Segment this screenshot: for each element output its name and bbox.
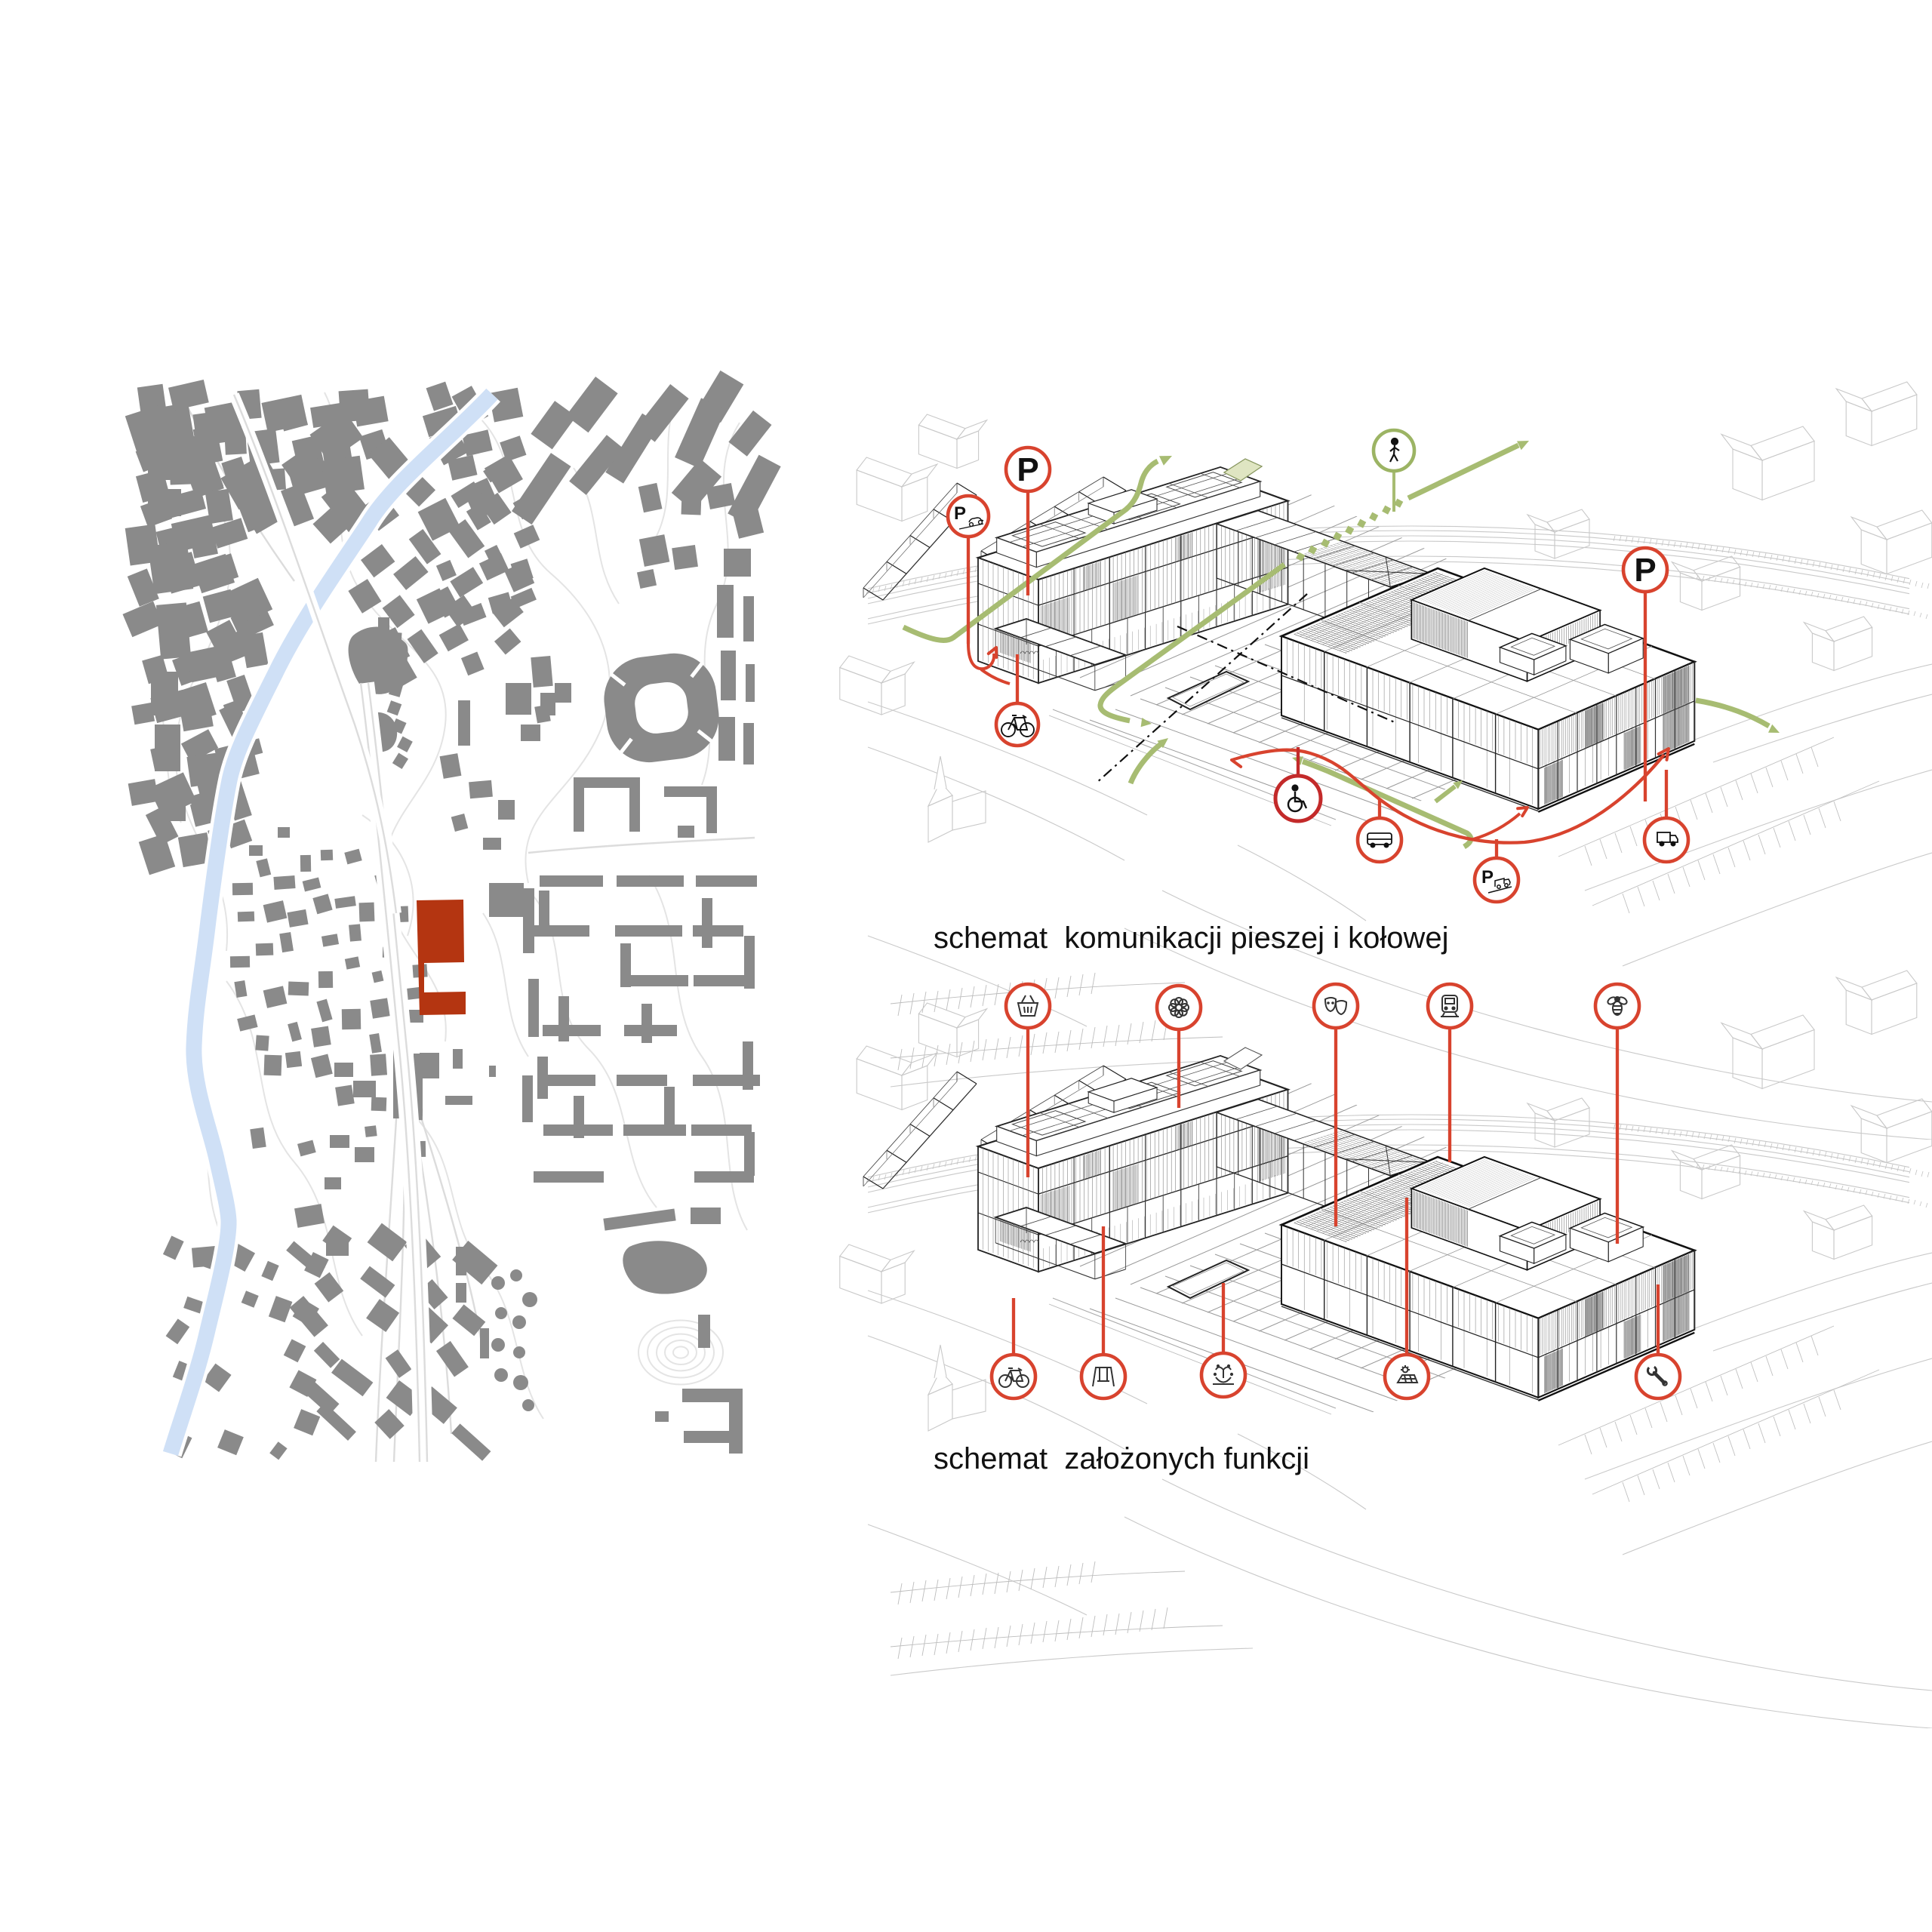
- svg-text:P: P: [1017, 451, 1038, 488]
- svg-text:schemat założonych funkcji: schemat założonych funkcji: [934, 1442, 1309, 1475]
- svg-text:P: P: [1481, 867, 1494, 888]
- svg-text:schemat komunikacji pieszej i: schemat komunikacji pieszej i kołowej: [934, 921, 1449, 955]
- svg-text:P: P: [1634, 552, 1656, 589]
- svg-text:P: P: [954, 503, 966, 524]
